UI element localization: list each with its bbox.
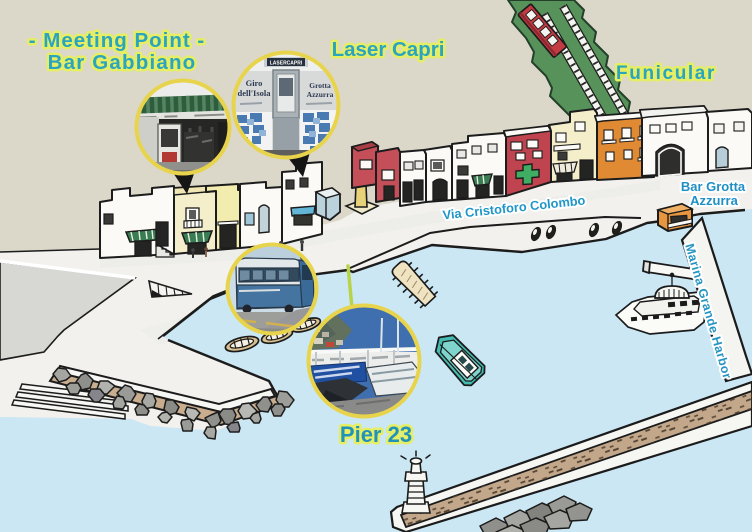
- svg-text:Azzurra: Azzurra: [690, 193, 738, 208]
- svg-text:Laser Capri: Laser Capri: [332, 38, 445, 61]
- svg-text:Grotta: Grotta: [309, 81, 331, 90]
- svg-text:Bar Grotta: Bar Grotta: [681, 179, 746, 194]
- svg-text:LASERCAPRI: LASERCAPRI: [270, 61, 303, 67]
- svg-text:Bar Gabbiano: Bar Gabbiano: [48, 51, 197, 74]
- svg-text:Giro: Giro: [246, 78, 263, 88]
- svg-text:Funicular: Funicular: [616, 63, 716, 84]
- svg-text:Azzurra: Azzurra: [307, 90, 334, 99]
- svg-text:dell'Isola: dell'Isola: [237, 88, 271, 98]
- svg-text:- Meeting Point -: - Meeting Point -: [29, 29, 205, 52]
- svg-text:Pier 23: Pier 23: [340, 422, 412, 447]
